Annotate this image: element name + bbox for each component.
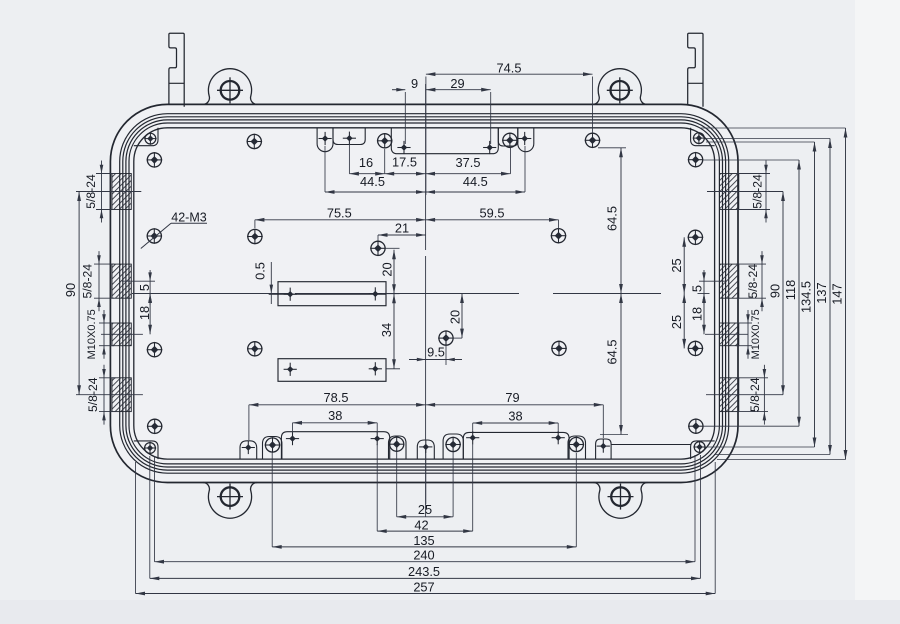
svg-text:79: 79: [505, 390, 519, 405]
svg-text:134.5: 134.5: [799, 281, 814, 313]
svg-text:137: 137: [814, 282, 829, 303]
svg-text:5/8-24: 5/8-24: [751, 174, 765, 209]
svg-text:135: 135: [413, 533, 434, 548]
svg-text:16: 16: [359, 155, 373, 170]
svg-text:59.5: 59.5: [480, 206, 505, 221]
svg-text:42: 42: [414, 517, 428, 532]
svg-text:38: 38: [328, 408, 342, 423]
svg-text:20: 20: [448, 310, 463, 324]
svg-text:5: 5: [690, 285, 705, 292]
svg-text:147: 147: [830, 283, 845, 304]
svg-text:5/8-24: 5/8-24: [81, 264, 95, 299]
svg-text:118: 118: [783, 280, 798, 300]
svg-text:25: 25: [669, 315, 684, 329]
svg-text:42-M3: 42-M3: [171, 210, 206, 224]
svg-text:5/8-24: 5/8-24: [746, 264, 760, 299]
svg-text:9: 9: [411, 76, 418, 91]
svg-text:18: 18: [690, 307, 705, 321]
svg-text:M10X0.75: M10X0.75: [86, 309, 98, 359]
svg-text:9.5: 9.5: [427, 345, 445, 360]
svg-text:34: 34: [379, 323, 394, 337]
svg-text:90: 90: [63, 283, 78, 297]
svg-text:38: 38: [508, 409, 522, 424]
svg-text:75.5: 75.5: [327, 205, 352, 220]
svg-text:18: 18: [137, 306, 152, 320]
svg-text:44.5: 44.5: [463, 174, 488, 189]
svg-text:74.5: 74.5: [497, 60, 522, 75]
svg-text:64.5: 64.5: [605, 340, 620, 365]
svg-text:5/8-24: 5/8-24: [86, 377, 100, 412]
svg-text:17.5: 17.5: [392, 155, 417, 170]
svg-text:25: 25: [669, 258, 684, 272]
svg-text:5: 5: [137, 284, 152, 291]
svg-text:243.5: 243.5: [408, 564, 440, 579]
svg-text:64.5: 64.5: [605, 206, 620, 231]
svg-text:25: 25: [418, 502, 432, 517]
svg-text:5/8-24: 5/8-24: [748, 377, 762, 412]
svg-text:5/8-24: 5/8-24: [84, 174, 98, 209]
svg-text:37.5: 37.5: [456, 155, 481, 170]
svg-text:20: 20: [380, 262, 395, 276]
svg-text:78.5: 78.5: [324, 390, 349, 405]
svg-text:29: 29: [450, 76, 464, 91]
svg-text:0.5: 0.5: [253, 262, 268, 280]
svg-text:240: 240: [413, 548, 434, 563]
svg-text:M10X0.75: M10X0.75: [750, 309, 762, 359]
svg-text:21: 21: [395, 221, 409, 236]
svg-text:257: 257: [413, 580, 434, 595]
svg-text:44.5: 44.5: [360, 174, 385, 189]
svg-text:90: 90: [768, 284, 783, 298]
